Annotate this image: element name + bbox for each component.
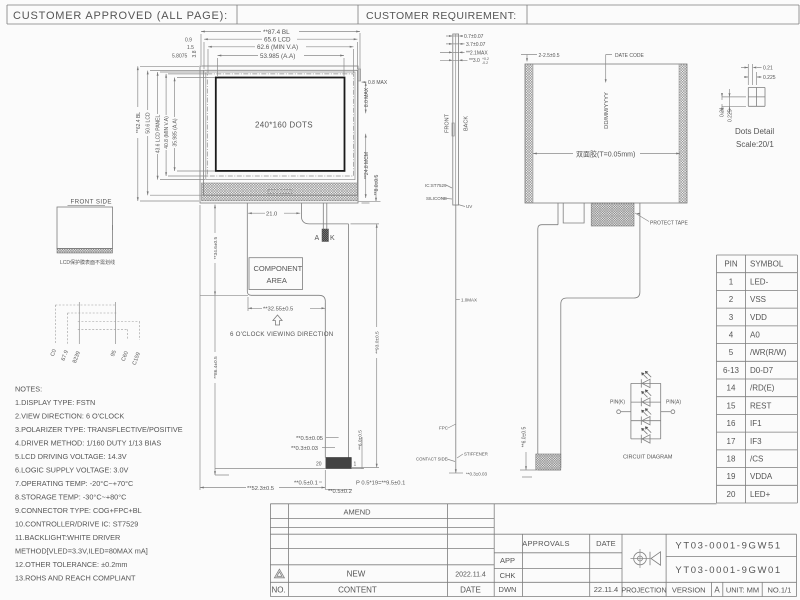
svg-text:IF3: IF3 bbox=[750, 437, 762, 446]
svg-text:**93.0±0.5: **93.0±0.5 bbox=[375, 331, 381, 354]
svg-text:Dots Detail: Dots Detail bbox=[735, 127, 774, 136]
svg-text:NO.1/1: NO.1/1 bbox=[768, 585, 792, 594]
svg-text:P 0.5*19=**9.5±0.1: P 0.5*19=**9.5±0.1 bbox=[356, 480, 405, 486]
svg-text:65.6 LCD: 65.6 LCD bbox=[264, 37, 291, 44]
svg-text:40.8 (MIN V.A): 40.8 (MIN V.A) bbox=[164, 116, 170, 149]
svg-text:18: 18 bbox=[727, 455, 736, 464]
svg-text:**2.1MAX: **2.1MAX bbox=[466, 50, 488, 56]
svg-text:2: 2 bbox=[729, 295, 734, 304]
svg-text:53.985 (A.A): 53.985 (A.A) bbox=[260, 53, 295, 60]
svg-text:35.985 (A.A): 35.985 (A.A) bbox=[173, 118, 179, 146]
svg-text:PIN(K): PIN(K) bbox=[610, 400, 625, 406]
svg-text:/CS: /CS bbox=[750, 455, 763, 464]
svg-text:2022.11.4: 2022.11.4 bbox=[455, 571, 486, 578]
svg-text:BACK: BACK bbox=[464, 116, 470, 131]
svg-text:0.225: 0.225 bbox=[728, 109, 734, 122]
svg-text:**52.3±0.5: **52.3±0.5 bbox=[247, 486, 274, 492]
svg-text:**0.3±0.03: **0.3±0.03 bbox=[291, 446, 318, 452]
svg-text:15: 15 bbox=[727, 401, 736, 410]
svg-text:A: A bbox=[315, 235, 320, 242]
svg-text:双面胶(T=0.05mm): 双面胶(T=0.05mm) bbox=[576, 149, 635, 158]
svg-text:Scale:20/1: Scale:20/1 bbox=[736, 140, 774, 149]
svg-text:AREA: AREA bbox=[267, 276, 287, 285]
svg-text:LCD保护膜表面不需划线: LCD保护膜表面不需划线 bbox=[60, 259, 115, 266]
svg-text:6 O'CLOCK VIEWING DIRECTION: 6 O'CLOCK VIEWING DIRECTION bbox=[230, 331, 334, 338]
svg-text:0.21: 0.21 bbox=[763, 66, 773, 72]
svg-text:20: 20 bbox=[316, 462, 322, 468]
svg-text:DATE: DATE bbox=[596, 539, 615, 548]
svg-text:FPC: FPC bbox=[439, 426, 449, 431]
svg-text:**0.5±0.05: **0.5±0.05 bbox=[296, 436, 323, 442]
svg-text:VDD: VDD bbox=[750, 313, 767, 322]
svg-text:PIN(A): PIN(A) bbox=[666, 400, 681, 406]
svg-text:2-2.5±0.5: 2-2.5±0.5 bbox=[539, 53, 560, 59]
svg-text:APPROVALS: APPROVALS bbox=[522, 539, 570, 548]
svg-text:COMPONENT: COMPONENT bbox=[254, 264, 303, 273]
svg-text:5: 5 bbox=[729, 348, 734, 357]
svg-text:3: 3 bbox=[729, 313, 734, 322]
svg-text:**62.4 BL: **62.4 BL bbox=[136, 112, 142, 133]
svg-text:0.225: 0.225 bbox=[763, 75, 776, 81]
svg-text:3.8: 3.8 bbox=[192, 50, 198, 57]
svg-text:CUSTOMER APPROVED (ALL PAGE):: CUSTOMER APPROVED (ALL PAGE): bbox=[13, 10, 228, 22]
svg-text:9.CONNECTOR TYPE: COG+FPC+BL: 9.CONNECTOR TYPE: COG+FPC+BL bbox=[15, 506, 142, 515]
svg-text:2.VIEW DIRECTION: 6 O'CLOCK: 2.VIEW DIRECTION: 6 O'CLOCK bbox=[15, 412, 124, 421]
svg-text:/RD(E): /RD(E) bbox=[750, 384, 775, 393]
svg-text:240*160 DOTS: 240*160 DOTS bbox=[255, 121, 313, 130]
svg-text:**6.0±0.5: **6.0±0.5 bbox=[522, 427, 528, 448]
svg-text:62.6 (MIN V.A): 62.6 (MIN V.A) bbox=[257, 44, 298, 51]
svg-text:CIRCUIT DIAGRAM: CIRCUIT DIAGRAM bbox=[623, 455, 673, 461]
svg-text:FRONT: FRONT bbox=[445, 113, 451, 133]
svg-text:D0-D7: D0-D7 bbox=[750, 366, 774, 375]
svg-text:6-13: 6-13 bbox=[723, 366, 740, 375]
svg-text:22.11.4: 22.11.4 bbox=[594, 585, 618, 594]
svg-text:**86.4±0.5: **86.4±0.5 bbox=[213, 356, 219, 379]
svg-text:7.OPERATING TEMP: -20°C~+70°C: 7.OPERATING TEMP: -20°C~+70°C bbox=[15, 479, 133, 488]
svg-text:5.8075: 5.8075 bbox=[172, 54, 188, 60]
svg-text:0.8 MAX: 0.8 MAX bbox=[368, 80, 388, 86]
svg-text:CONTACT SIDE: CONTACT SIDE bbox=[416, 457, 448, 462]
svg-text:17: 17 bbox=[727, 437, 736, 446]
svg-text:**0.5±0.1: **0.5±0.1 bbox=[294, 480, 318, 486]
svg-text:5.LCD DRIVING VOLTAGE: 14.3V: 5.LCD DRIVING VOLTAGE: 14.3V bbox=[15, 452, 127, 461]
svg-text:DD/MM/YYYY: DD/MM/YYYY bbox=[604, 92, 610, 129]
svg-text:**32.55±0.5: **32.55±0.5 bbox=[263, 307, 293, 313]
svg-text:-0.2: -0.2 bbox=[482, 61, 488, 65]
svg-text:16: 16 bbox=[727, 419, 736, 428]
svg-text:1: 1 bbox=[354, 462, 357, 468]
svg-text:21.0: 21.0 bbox=[266, 212, 277, 218]
svg-text:20: 20 bbox=[727, 490, 736, 499]
svg-text:A: A bbox=[714, 585, 720, 594]
svg-text:YT03-0001-9GW51: YT03-0001-9GW51 bbox=[675, 541, 781, 552]
svg-text:A0: A0 bbox=[750, 331, 760, 340]
svg-text:CHK: CHK bbox=[500, 571, 516, 580]
svg-text:4: 4 bbox=[729, 331, 734, 340]
svg-text:43.6 LCD PANEL: 43.6 LCD PANEL bbox=[156, 115, 162, 154]
svg-text:PIN: PIN bbox=[724, 260, 738, 269]
svg-text:**34.6±0.5: **34.6±0.5 bbox=[213, 236, 219, 259]
svg-text:**87.4 BL: **87.4 BL bbox=[263, 29, 290, 36]
svg-text:1: 1 bbox=[729, 277, 734, 286]
svg-text:8.0 MAX: 8.0 MAX bbox=[364, 87, 370, 107]
svg-text:**6.0±0.5: **6.0±0.5 bbox=[357, 430, 363, 450]
svg-text:LED-: LED- bbox=[750, 277, 769, 286]
svg-text:/WR(R/W): /WR(R/W) bbox=[750, 348, 787, 357]
svg-text:1.0MAX: 1.0MAX bbox=[461, 298, 477, 303]
svg-text:K: K bbox=[330, 235, 335, 242]
svg-text:UV: UV bbox=[466, 204, 472, 209]
svg-text:1.5: 1.5 bbox=[187, 45, 194, 51]
svg-text:APP: APP bbox=[500, 556, 515, 565]
svg-text:1.DISPLAY TYPE: FSTN: 1.DISPLAY TYPE: FSTN bbox=[15, 398, 95, 407]
svg-text:0.9: 0.9 bbox=[185, 38, 192, 44]
svg-text:IF1: IF1 bbox=[750, 419, 762, 428]
svg-text:**0.3±0.03: **0.3±0.03 bbox=[466, 471, 487, 476]
svg-text:10.CONTROLLER/DRIVE IC: ST7529: 10.CONTROLLER/DRIVE IC: ST7529 bbox=[15, 520, 138, 529]
svg-text:CUSTOMER REQUIREMENT:: CUSTOMER REQUIREMENT: bbox=[366, 10, 517, 22]
svg-text:LED+: LED+ bbox=[750, 490, 771, 499]
svg-text:13.ROHS AND REACH COMPLIANT: 13.ROHS AND REACH COMPLIANT bbox=[15, 574, 136, 583]
svg-text:DATE CODE: DATE CODE bbox=[615, 53, 644, 59]
svg-text:50.6 LCD: 50.6 LCD bbox=[146, 112, 152, 134]
svg-text:14: 14 bbox=[727, 384, 736, 393]
svg-text:VSS: VSS bbox=[750, 295, 766, 304]
svg-text:**8.0±0.5: **8.0±0.5 bbox=[374, 175, 380, 196]
svg-text:VERSION: VERSION bbox=[672, 585, 706, 594]
svg-text:NEW: NEW bbox=[347, 570, 366, 579]
svg-text:12.OTHER TOLERANCE: ±0.2mm: 12.OTHER TOLERANCE: ±0.2mm bbox=[15, 560, 127, 569]
svg-text:PROTECT TAPE: PROTECT TAPE bbox=[650, 220, 688, 226]
svg-text:METHOD[VLED=3.3V,ILED=80MAX mA: METHOD[VLED=3.3V,ILED=80MAX mA] bbox=[15, 547, 148, 556]
svg-text:NOTES:: NOTES: bbox=[15, 385, 42, 394]
svg-text:PROJECTION: PROJECTION bbox=[621, 587, 666, 594]
svg-text:0.7±0.07: 0.7±0.07 bbox=[464, 34, 484, 40]
svg-text:DATE: DATE bbox=[460, 585, 481, 594]
svg-text:11.BACKLIGHT:WHITE DRIVER: 11.BACKLIGHT:WHITE DRIVER bbox=[15, 533, 120, 542]
svg-text:**3.0: **3.0 bbox=[469, 58, 480, 64]
svg-text:3.POLARIZER TYPE: TRANSFLECTIV: 3.POLARIZER TYPE: TRANSFLECTIVE/POSITIVE bbox=[15, 425, 183, 434]
svg-text:IC:ST7529: IC:ST7529 bbox=[425, 183, 447, 188]
svg-text:8.STORAGE TEMP: -30°C~+80°C: 8.STORAGE TEMP: -30°C~+80°C bbox=[15, 493, 126, 502]
svg-text:3.7±0.07: 3.7±0.07 bbox=[466, 42, 486, 48]
svg-text:VDDA: VDDA bbox=[750, 472, 773, 481]
svg-text:DWN: DWN bbox=[499, 585, 517, 594]
svg-text:**24.8 MCM: **24.8 MCM bbox=[364, 152, 370, 179]
svg-text:4.DRIVER METHOD: 1/160 DUTY 1/: 4.DRIVER METHOD: 1/160 DUTY 1/13 BIAS bbox=[15, 439, 161, 448]
svg-text:**0.5±0.2: **0.5±0.2 bbox=[328, 489, 352, 495]
svg-text:FRONT SIDE: FRONT SIDE bbox=[71, 198, 112, 205]
svg-text:NO.: NO. bbox=[272, 585, 286, 594]
svg-text:19: 19 bbox=[727, 472, 736, 481]
svg-text:SYMBOL: SYMBOL bbox=[750, 260, 784, 269]
svg-text:REST: REST bbox=[750, 401, 771, 410]
svg-text:UNIT: MM: UNIT: MM bbox=[726, 585, 759, 594]
svg-text:YT03-0001-9GW01: YT03-0001-9GW01 bbox=[675, 565, 781, 576]
svg-text:CONTENT: CONTENT bbox=[338, 585, 377, 594]
svg-text:STIFFENER: STIFFENER bbox=[464, 452, 488, 457]
svg-text:AMEND: AMEND bbox=[343, 508, 371, 517]
svg-text:6.LOGIC SUPPLY VOLTAGE: 3.0V: 6.LOGIC SUPPLY VOLTAGE: 3.0V bbox=[15, 466, 129, 475]
svg-text:0.21: 0.21 bbox=[720, 107, 726, 117]
